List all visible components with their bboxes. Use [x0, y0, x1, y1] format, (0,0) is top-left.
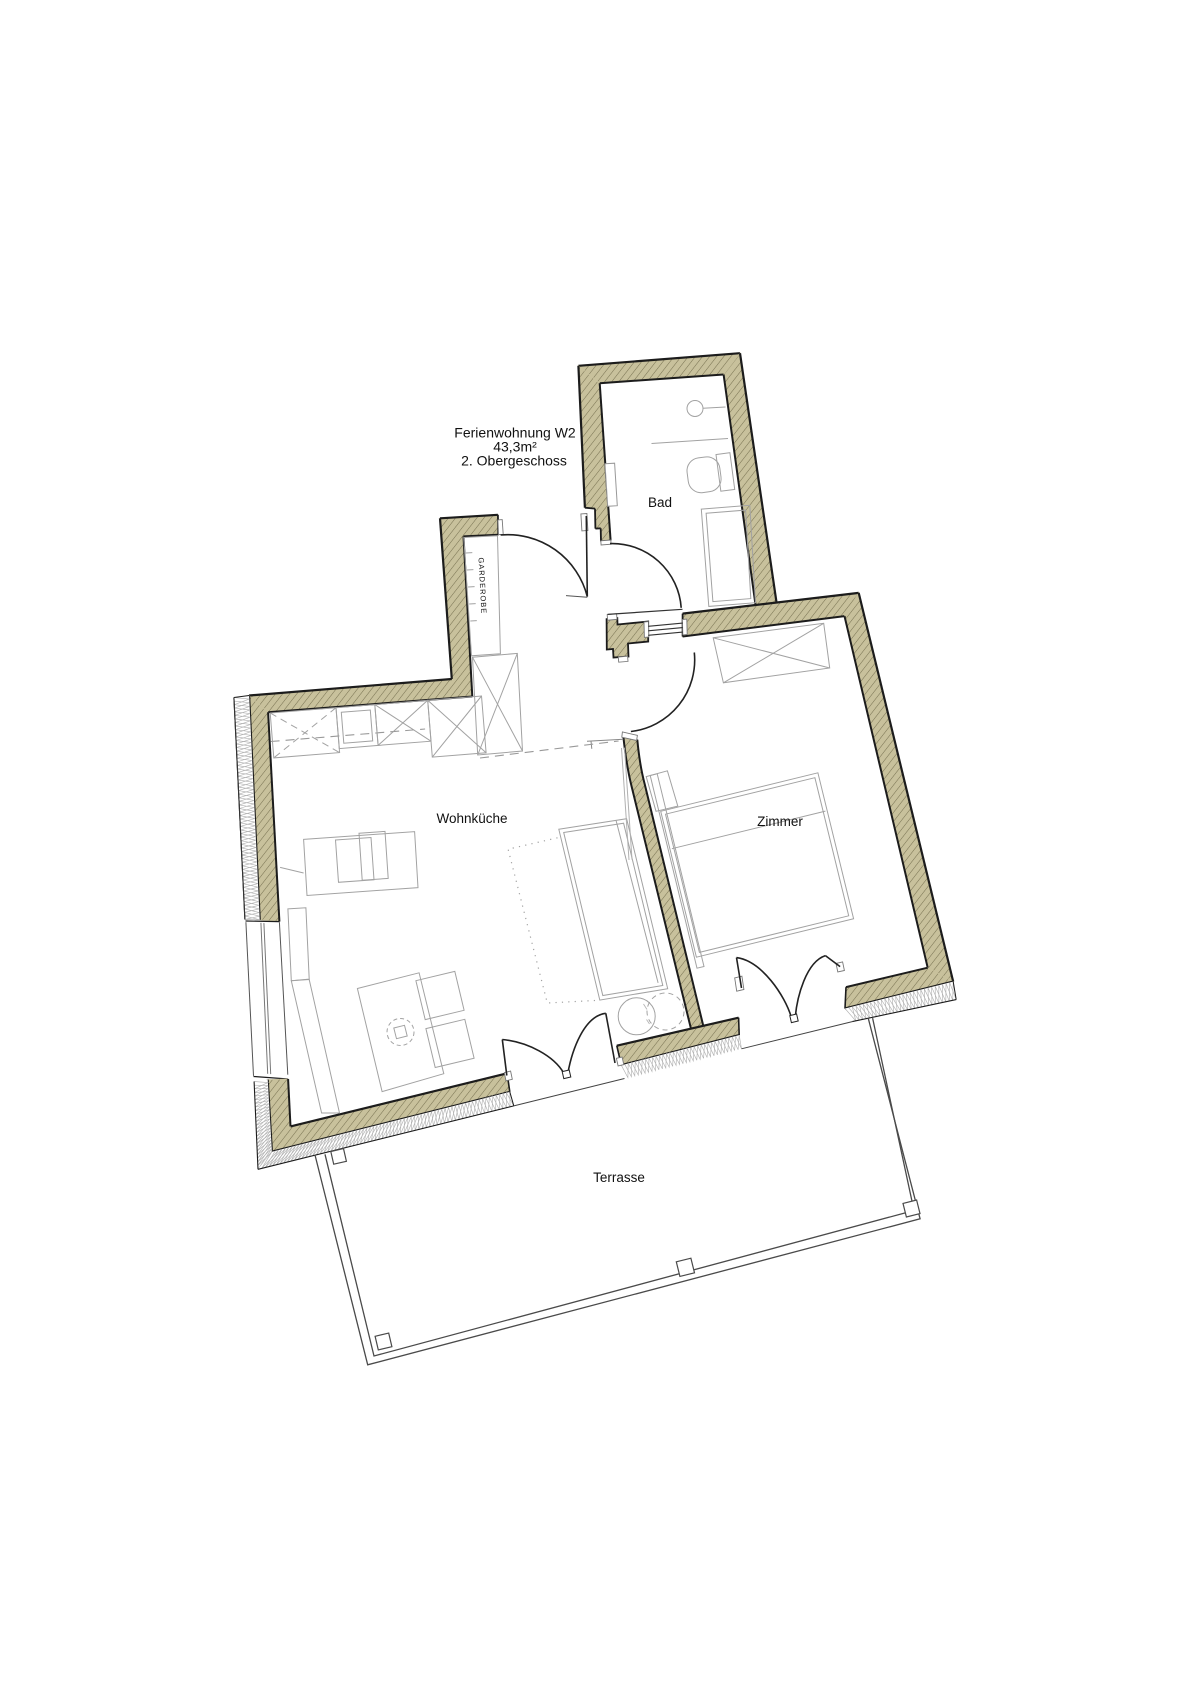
svg-text:Wohnküche: Wohnküche	[436, 811, 507, 826]
svg-text:Bad: Bad	[648, 495, 672, 510]
svg-text:Zimmer: Zimmer	[757, 814, 803, 829]
svg-text:2. Obergeschoss: 2. Obergeschoss	[461, 453, 567, 469]
svg-text:Terrasse: Terrasse	[593, 1170, 645, 1185]
